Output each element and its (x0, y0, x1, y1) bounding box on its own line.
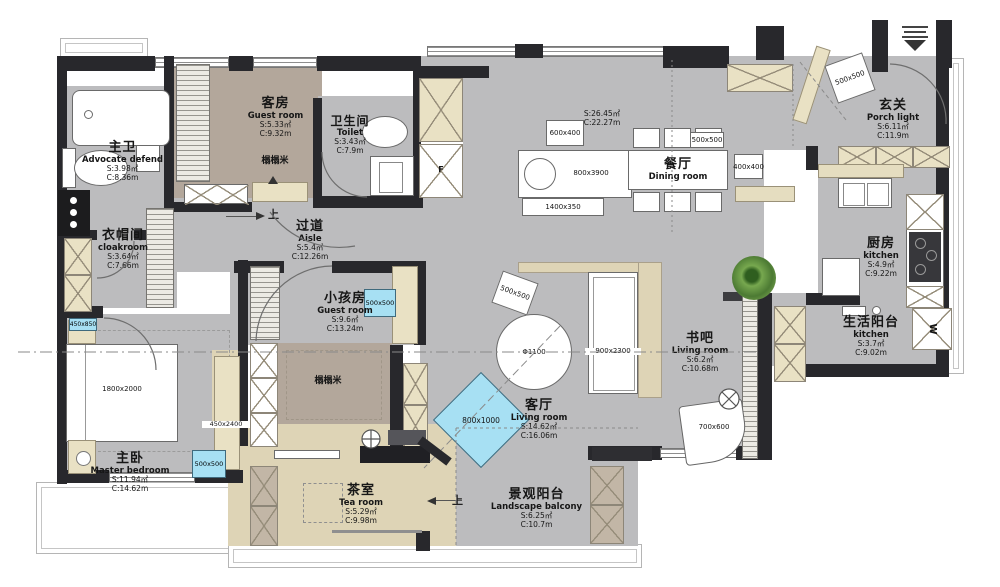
room-label-toilet: 卫生间 Toilet S:3.43㎡ C:7.9m (322, 114, 378, 156)
wall-dining-post (515, 44, 543, 58)
wall-tea-post (416, 531, 430, 551)
bathtub-drain (84, 110, 93, 119)
guest-cabinet (184, 184, 248, 204)
room-label-master: 主卧 Master bedroom S:11.94㎡ C:14.62m (85, 451, 175, 494)
dining-bar (735, 186, 795, 202)
shower-unit (58, 190, 90, 236)
sofa-back-right (638, 262, 662, 398)
wall-top-a (57, 56, 155, 71)
washer-label: W (927, 309, 937, 349)
wall-dining-right (663, 46, 729, 68)
side-table-dim: 400x400 (734, 154, 763, 179)
bookshelf (742, 295, 758, 459)
deck-top-left (60, 38, 148, 58)
wall-bookbar-right (758, 293, 772, 460)
up-label-balcony: 上 (452, 492, 463, 508)
balcony-fixture (872, 306, 881, 315)
balcony-cabinets (590, 466, 624, 544)
dining-stats: S:26.45㎡ C:22.27m (572, 110, 632, 128)
nightstand-dim-tag: 450x850 (69, 318, 97, 331)
balcony-console (592, 447, 652, 461)
armchair-dim: 700x600 (684, 424, 744, 431)
deck-bottom-center (228, 544, 642, 568)
wall-balcony-bottom (784, 364, 949, 377)
room-label-aisle: 过道 Aisle S:5.4㎡ C:12.26m (283, 219, 337, 262)
room-label-dining: 餐厅 Dining room (643, 157, 713, 182)
wall-toilet-bottom (313, 196, 423, 208)
wall-closet-top (415, 66, 489, 78)
tatami-storage-column (250, 343, 278, 447)
dining-chair (664, 192, 691, 212)
room-label-kitchen: 厨房 kitchen S:4.9㎡ C:9.22m (841, 236, 921, 279)
island-dim: 800x3900 (556, 170, 626, 177)
kitchen-tall-unit-bottom (906, 286, 944, 308)
plant (732, 256, 776, 300)
room-label-living-balcony: 生活阳台 kitchen S:3.7㎡ C:9.02m (826, 315, 916, 358)
room-label-book-bar: 书吧 Living room S:6.2㎡ C:10.68m (655, 331, 745, 374)
bookbar-cabinets (774, 306, 806, 382)
room-label-living: 客厅 Living room S:14.62㎡ C:16.06m (494, 398, 584, 441)
tea-cabinets (250, 466, 278, 546)
dining-chair (633, 192, 660, 212)
dining-chair-dim: 500x500 (690, 132, 724, 148)
sofa-dim: 900x2300 (585, 348, 641, 355)
guest-wardrobe (176, 64, 210, 182)
entry-arrow-triangle (904, 40, 926, 51)
window-guest-2 (253, 57, 317, 68)
master-cube: 500x500 (192, 450, 226, 478)
dining-chair (695, 192, 722, 212)
room-label-tea: 茶室 Tea room S:5.29㎡ C:9.98m (330, 483, 392, 526)
room-label-cloakroom: 衣帽间 cloakroom S:3.64㎡ C:7.66m (88, 228, 158, 271)
tea-low-table (274, 450, 340, 459)
fridge-label: F (419, 166, 463, 174)
wardrobe-dim: 450x2400 (202, 421, 250, 428)
bed-dim: 1800x2000 (92, 386, 152, 393)
kids-tatami-label: 榻榻米 (303, 376, 353, 387)
tea-shelf-line (332, 530, 422, 533)
up-label-aisle: 上 (268, 206, 279, 222)
kids-wardrobe (250, 266, 280, 340)
dining-sideboard (727, 64, 793, 92)
entry-arrow-icon (902, 26, 928, 28)
tea-counter (360, 446, 430, 463)
guest-step (252, 182, 308, 202)
wall-porch-left-post (756, 26, 784, 60)
wall-entry-post (872, 20, 888, 72)
room-label-kids: 小孩房 Guest room S:9.6㎡ C:13.24m (310, 291, 380, 334)
guest-tatami-label: 榻榻米 (250, 156, 300, 167)
floor-plan: F 800x3900 600x400 1400x350 500x500 400x… (0, 0, 1000, 587)
wall-toilet-left (313, 98, 322, 202)
kitchen-counter (818, 164, 904, 178)
master-bed (66, 344, 178, 442)
wall-top-post (229, 56, 253, 71)
window-dining (427, 46, 673, 57)
dining-chair (633, 128, 660, 148)
dining-chair (664, 128, 691, 148)
sofa (588, 272, 638, 394)
entry-cabinet-tall (419, 78, 463, 142)
console-dim: 1400x350 (522, 198, 604, 216)
wall-kitchen-post (806, 146, 818, 170)
kitchen-sink (838, 178, 892, 208)
toilet-vanity (370, 156, 414, 196)
up-arrow-left-icon (427, 497, 436, 505)
up-arrow-guest-icon (268, 176, 278, 184)
room-label-porch: 玄关 Porch light S:6.11㎡ C:11.9m (848, 98, 938, 141)
round-table-dim: Φ1100 (506, 349, 562, 356)
room-label-master-bath: 主卫 Advocate defend S:3.98㎡ C:8.36m (80, 140, 165, 183)
island-sink (524, 158, 556, 190)
kitchen-tall-unit-top (906, 194, 944, 230)
tea-counter-stub (388, 430, 426, 445)
up-arrow-aisle-icon (256, 212, 265, 220)
room-label-guest: 客房 Guest room S:5.33㎡ C:9.32m (243, 96, 308, 139)
wall-top-b (317, 56, 421, 71)
room-label-landscape-balcony: 景观阳台 Landscape balcony S:6.25㎡ C:10.7m (489, 487, 584, 530)
